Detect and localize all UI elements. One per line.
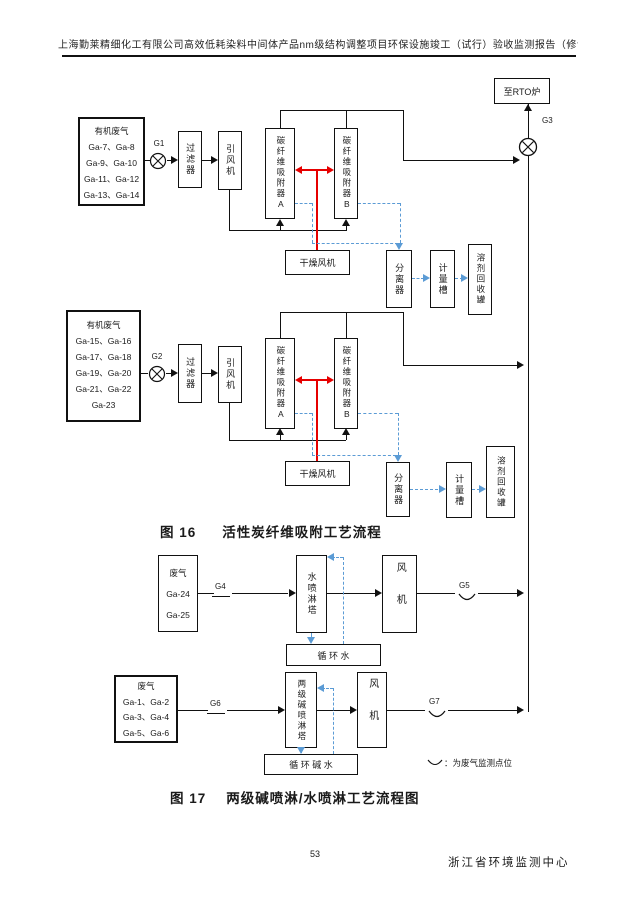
source-line: Ga-13、Ga-14	[80, 187, 143, 203]
waste-gas-source-box-1: 有机废气 Ga-7、Ga-8 Ga-9、Ga-10 Ga-11、Ga-12 Ga…	[78, 117, 145, 206]
recycle-line-blue	[333, 688, 334, 754]
arrow	[479, 485, 486, 493]
arrow	[342, 428, 350, 435]
source-line: Ga-21、Ga-22	[68, 381, 139, 397]
fan-box-alkali: 风机	[357, 672, 387, 748]
blower-symbol-icon	[148, 365, 166, 383]
connector-line	[403, 110, 404, 160]
condensate-line-blue	[400, 203, 401, 243]
figure17-caption: 图 17 两级碱喷淋/水喷淋工艺流程图	[170, 787, 420, 807]
arrow	[297, 747, 305, 754]
arrow	[513, 156, 520, 164]
connector-line	[448, 710, 520, 711]
condensate-line-blue	[358, 413, 398, 414]
connector-line	[403, 312, 404, 365]
arrow	[295, 166, 302, 174]
alkali-spray-tower-box: 两级碱喷淋塔	[285, 672, 317, 748]
condensate-line-blue	[295, 413, 312, 414]
legend-sampling-port-icon	[427, 759, 443, 768]
source-line: Ga-1、Ga-2	[116, 695, 176, 711]
connector-line	[229, 190, 230, 231]
source-title: 废气	[116, 679, 176, 695]
arrow	[394, 455, 402, 462]
connector-line	[229, 403, 230, 441]
monitor-point-label-g1: G1	[149, 139, 169, 148]
connector-line	[403, 365, 518, 366]
condensate-line-blue	[358, 203, 400, 204]
condensate-line-blue	[312, 413, 313, 455]
draft-fan-box-1: 引风机	[218, 131, 242, 190]
arrow	[395, 243, 403, 250]
arrow	[278, 706, 285, 714]
connector-line	[346, 110, 347, 128]
recovery-tank-box-2: 溶剂回收罐	[486, 446, 515, 518]
filter-box-2: 过滤器	[178, 344, 202, 403]
draft-fan-box-2: 引风机	[218, 346, 242, 403]
arrow	[289, 589, 296, 597]
monitor-point-label-g3: G3	[542, 116, 553, 125]
source-line: Ga-9、Ga-10	[80, 155, 143, 171]
condensate-line-blue	[410, 489, 438, 490]
arrow	[327, 166, 334, 174]
figure16-caption-no: 图 16	[160, 521, 196, 541]
source-line: Ga-23	[68, 397, 139, 413]
regen-line-red	[316, 171, 318, 251]
filter-box-1: 过滤器	[178, 131, 202, 188]
arrow	[276, 428, 284, 435]
source-line: Ga-3、Ga-4	[116, 710, 176, 726]
arrow	[211, 156, 218, 164]
source-line: Ga-17、Ga-18	[68, 349, 139, 365]
arrow	[317, 684, 324, 692]
connector-line	[346, 312, 347, 338]
arrow	[171, 156, 178, 164]
fan-box-water: 风机	[382, 555, 417, 633]
legend-text: ：为废气监测点位	[444, 757, 512, 769]
arrow	[342, 219, 350, 226]
connector-line	[327, 593, 375, 594]
monitor-point-underline	[212, 596, 230, 597]
arrow	[307, 637, 315, 644]
arrow	[524, 104, 532, 111]
source-line: Ga-7、Ga-8	[80, 139, 143, 155]
recycle-water-box: 循 环 水	[286, 644, 381, 666]
rto-box: 至RTO炉	[494, 78, 550, 104]
arrow	[295, 376, 302, 384]
drying-fan-box-2: 干燥风机	[285, 461, 350, 486]
arrow	[327, 553, 334, 561]
adsorber-b-box-2: 碳纤维吸附器B	[334, 338, 358, 429]
condensate-line-blue	[312, 455, 396, 456]
separator-box-2: 分离器	[386, 462, 410, 517]
main-stack-line	[528, 104, 529, 712]
recycle-line-blue	[343, 557, 344, 644]
adsorber-a-box-2: 碳纤维吸附器A	[265, 338, 295, 429]
source-line: Ga-5、Ga-6	[116, 726, 176, 742]
blower-symbol-icon	[149, 152, 167, 170]
adsorber-a-box-1: 碳纤维吸附器A	[265, 128, 295, 219]
arrow	[171, 369, 178, 377]
monitor-point-underline	[207, 713, 225, 714]
figure16-caption-text: 活性炭纤维吸附工艺流程	[222, 521, 382, 541]
figure16-caption: 图 16 活性炭纤维吸附工艺流程	[160, 521, 382, 541]
connector-line	[232, 593, 288, 594]
condensate-line-blue	[295, 203, 312, 204]
connector-line	[280, 110, 403, 111]
connector-line	[229, 440, 346, 441]
arrow	[517, 361, 524, 369]
arrow	[517, 589, 524, 597]
figure17-caption-no: 图 17	[170, 787, 206, 807]
arrow	[461, 274, 468, 282]
connector-line	[227, 710, 278, 711]
figure17-caption-text: 两级碱喷淋/水喷淋工艺流程图	[226, 787, 419, 807]
monitor-point-label-g6: G6	[210, 699, 221, 708]
arrow	[327, 376, 334, 384]
waste-gas-source-box-4: 废气 Ga-1、Ga-2 Ga-3、Ga-4 Ga-5、Ga-6	[114, 675, 178, 743]
connector-line	[417, 593, 455, 594]
page-number: 53	[300, 849, 330, 859]
measuring-tank-box-1: 计量槽	[430, 250, 455, 308]
document-page: 上海勤莱精细化工有限公司高效低耗染料中间体产品nm级结构调整项目环保设施竣工（试…	[0, 0, 636, 900]
arrow	[276, 219, 284, 226]
source-line: Ga-11、Ga-12	[80, 171, 143, 187]
recovery-tank-box-1: 溶剂回收罐	[468, 244, 492, 315]
source-line: Ga-15、Ga-16	[68, 333, 139, 349]
waste-gas-source-box-2: 有机废气 Ga-15、Ga-16 Ga-17、Ga-18 Ga-19、Ga-20…	[66, 310, 141, 422]
connector-line	[280, 110, 281, 128]
connector-line	[141, 373, 148, 374]
recycle-alkali-water-box: 循 环 碱 水	[264, 754, 358, 775]
footer-organization: 浙江省环境监测中心	[448, 854, 570, 870]
arrow	[439, 485, 446, 493]
source-line: Ga-19、Ga-20	[68, 365, 139, 381]
monitor-point-label-g2: G2	[147, 352, 167, 361]
source-title: 有机废气	[80, 123, 143, 139]
connector-line	[280, 312, 403, 313]
header-rule	[62, 55, 576, 57]
connector-line	[478, 593, 520, 594]
arrow	[423, 274, 430, 282]
monitor-point-label-g5: G5	[459, 581, 470, 590]
arrow	[517, 706, 524, 714]
source-title: 有机废气	[68, 317, 139, 333]
adsorber-b-box-1: 碳纤维吸附器B	[334, 128, 358, 219]
page-header-title: 上海勤莱精细化工有限公司高效低耗染料中间体产品nm级结构调整项目环保设施竣工（试…	[58, 36, 578, 51]
condensate-line-blue	[312, 203, 313, 243]
source-line: Ga-25	[159, 605, 197, 626]
separator-box-1: 分离器	[386, 250, 412, 308]
source-title: 废气	[159, 563, 197, 584]
connector-line	[387, 710, 425, 711]
monitor-point-label-g7: G7	[429, 697, 440, 706]
condensate-line-blue	[398, 413, 399, 455]
connector-line	[280, 312, 281, 338]
arrow	[211, 369, 218, 377]
sampling-port-icon	[428, 710, 446, 720]
connector-line	[178, 710, 208, 711]
exhaust-fan-icon	[518, 137, 538, 157]
connector-line	[198, 593, 214, 594]
connector-line	[403, 160, 515, 161]
regen-line-red	[316, 381, 318, 462]
arrow	[375, 589, 382, 597]
drying-fan-box-1: 干燥风机	[285, 250, 350, 275]
measuring-tank-box-2: 计量槽	[446, 462, 472, 518]
water-spray-tower-box: 水喷淋塔	[296, 555, 327, 633]
monitor-point-label-g4: G4	[215, 582, 226, 591]
arrow	[350, 706, 357, 714]
source-line: Ga-24	[159, 584, 197, 605]
sampling-port-icon	[458, 593, 476, 603]
condensate-line-blue	[312, 243, 398, 244]
connector-line	[229, 230, 346, 231]
waste-gas-source-box-3: 废气 Ga-24 Ga-25	[158, 555, 198, 632]
